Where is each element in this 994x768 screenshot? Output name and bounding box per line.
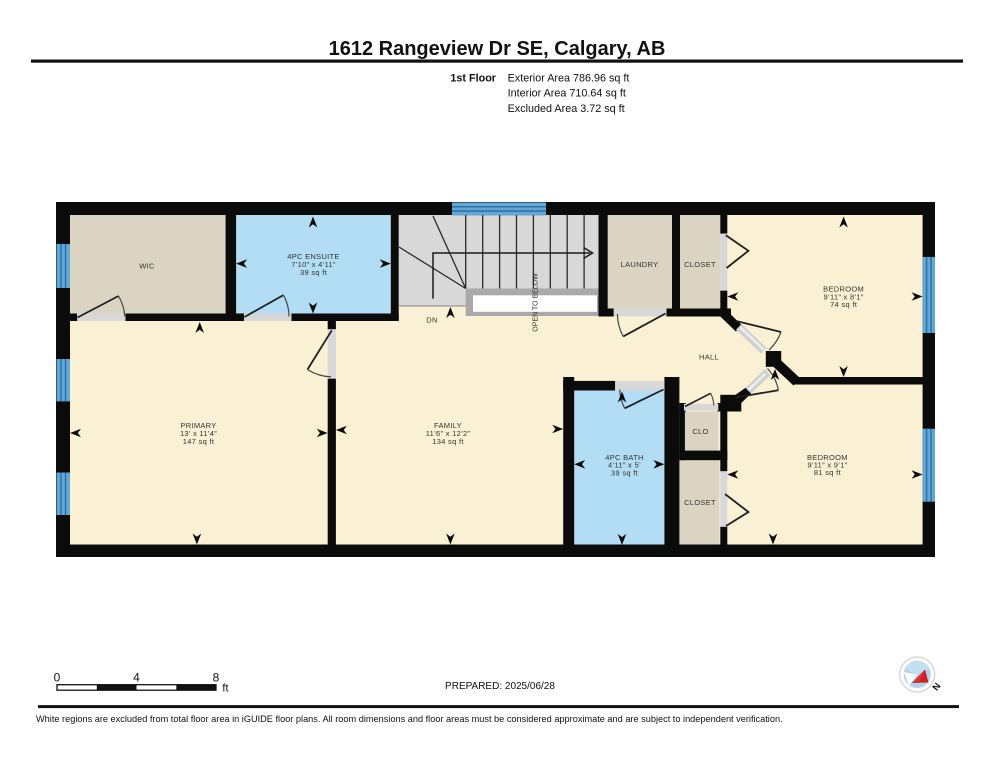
- svg-text:74 sq ft: 74 sq ft: [830, 300, 858, 309]
- svg-text:4: 4: [133, 670, 140, 684]
- svg-text:134 sq ft: 134 sq ft: [432, 437, 464, 446]
- svg-text:HALL: HALL: [699, 353, 719, 362]
- svg-text:39 sq ft: 39 sq ft: [300, 268, 328, 277]
- svg-text:LAUNDRY: LAUNDRY: [621, 260, 659, 269]
- svg-text:DN: DN: [426, 316, 437, 325]
- svg-text:8: 8: [213, 670, 220, 684]
- svg-text:Interior Area 710.64 sq ft: Interior Area 710.64 sq ft: [508, 88, 626, 100]
- svg-text:CLO: CLO: [692, 427, 708, 436]
- svg-text:1st Floor: 1st Floor: [450, 72, 496, 84]
- svg-text:ft: ft: [222, 683, 228, 695]
- svg-text:81 sq ft: 81 sq ft: [814, 468, 842, 477]
- svg-text:OPEN TO BELOW: OPEN TO BELOW: [533, 273, 540, 332]
- svg-text:147 sq ft: 147 sq ft: [183, 437, 215, 446]
- svg-text:Excluded Area 3.72 sq ft: Excluded Area 3.72 sq ft: [508, 103, 625, 115]
- svg-text:39 sq ft: 39 sq ft: [611, 469, 639, 478]
- svg-text:CLOSET: CLOSET: [684, 498, 716, 507]
- svg-text:0: 0: [54, 670, 61, 684]
- svg-text:1612 Rangeview Dr SE, Calgary,: 1612 Rangeview Dr SE, Calgary, AB: [329, 38, 666, 60]
- svg-text:CLOSET: CLOSET: [684, 260, 716, 269]
- svg-text:PREPARED: 2025/06/28: PREPARED: 2025/06/28: [445, 681, 555, 692]
- svg-text:White regions are excluded fro: White regions are excluded from total fl…: [36, 714, 783, 724]
- svg-text:WIC: WIC: [139, 262, 155, 271]
- svg-text:Exterior Area 786.96 sq ft: Exterior Area 786.96 sq ft: [508, 72, 630, 84]
